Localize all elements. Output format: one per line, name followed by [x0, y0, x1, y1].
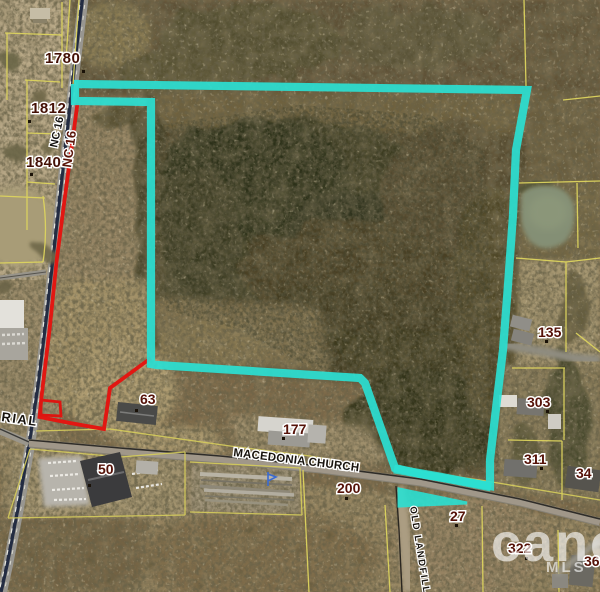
- svg-text:63: 63: [140, 391, 156, 407]
- svg-text:303: 303: [527, 394, 551, 410]
- svg-text:27: 27: [450, 508, 466, 524]
- svg-text:MLS: MLS: [546, 559, 587, 576]
- svg-text:1780: 1780: [45, 50, 80, 67]
- svg-text:1840: 1840: [26, 154, 61, 171]
- svg-text:1812: 1812: [31, 100, 66, 117]
- svg-text:34: 34: [576, 465, 592, 481]
- svg-text:311: 311: [524, 451, 547, 467]
- svg-text:135: 135: [538, 324, 562, 340]
- svg-text:177: 177: [283, 421, 307, 437]
- svg-text:200: 200: [337, 480, 361, 496]
- svg-text:50: 50: [98, 461, 114, 477]
